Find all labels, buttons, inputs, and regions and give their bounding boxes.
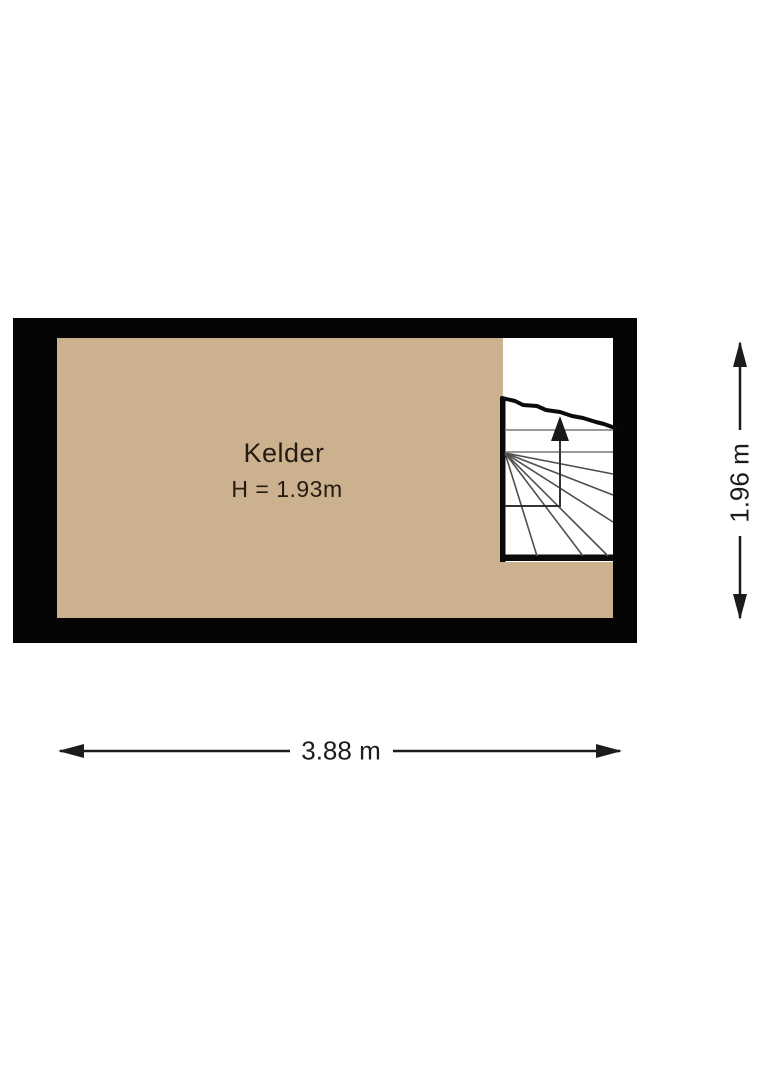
arrow-right-head-icon — [596, 744, 622, 758]
arrow-up-head-icon — [733, 341, 747, 367]
height-dimension-label: 1.96 m — [725, 443, 756, 523]
stairwell-area — [503, 338, 613, 562]
width-dimension-label: 3.88 m — [301, 736, 381, 767]
room-name-label: Kelder — [243, 438, 324, 469]
arrow-left-head-icon — [58, 744, 84, 758]
arrow-down-head-icon — [733, 594, 747, 620]
room-ceiling-height-label: H = 1.93m — [231, 476, 342, 503]
